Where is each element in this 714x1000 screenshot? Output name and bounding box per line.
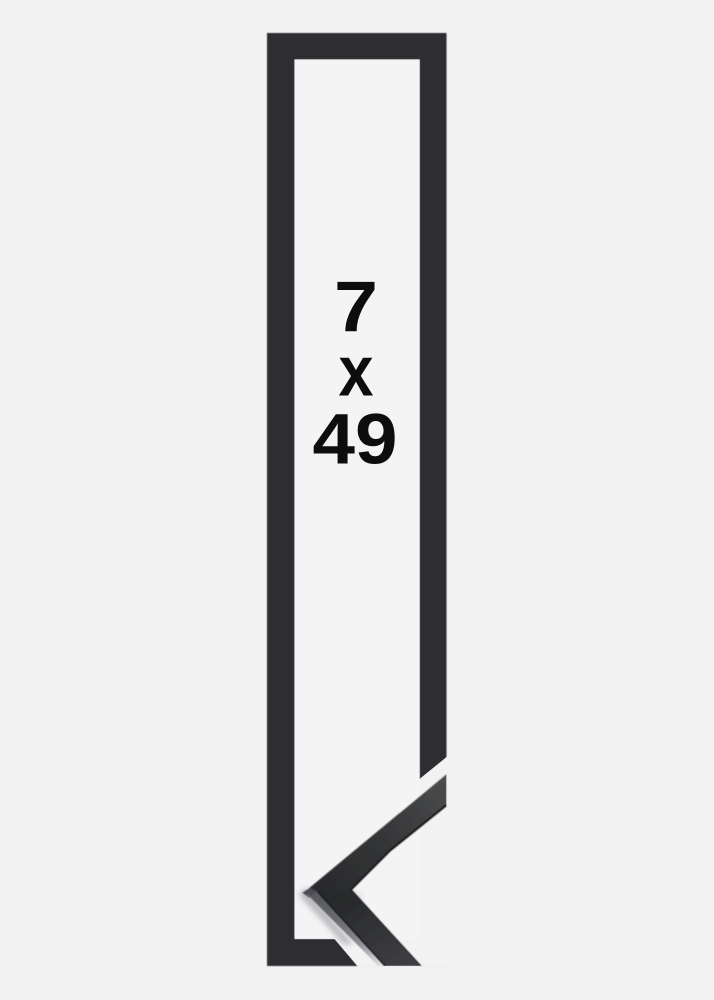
svg-text:49: 49 (313, 401, 398, 480)
